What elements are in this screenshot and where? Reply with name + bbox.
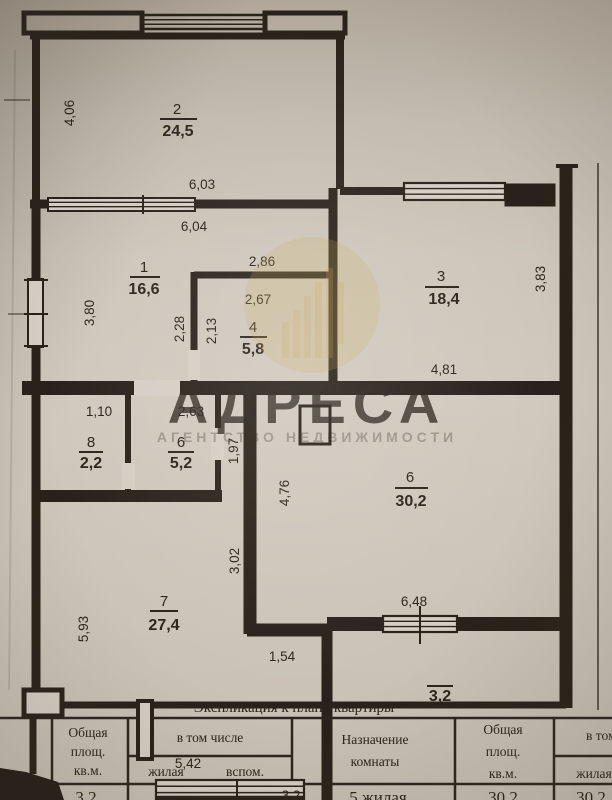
room-2-area: 24,5 [162,123,193,140]
floorplan-drawing: 2 24,5 1 16,6 3 18,4 4 5,8 8 2,2 6 5,2 6… [0,0,612,800]
room-6b-area: 30,2 [395,493,426,510]
room-3-area: 18,4 [428,291,459,308]
room-7-area: 27,4 [148,617,179,634]
explication-table: Экспликация к плану квартиры Общая площ.… [0,700,612,800]
room-1-number: 1 [140,259,148,276]
dim-1-54: 1,54 [269,649,296,664]
room-2-number: 2 [173,101,181,118]
row-total-right: 30,2 [488,788,518,800]
hdr-purpose-2: комнаты [351,754,400,769]
room-6b-number: 6 [406,469,414,486]
room-8-number: 8 [87,434,95,451]
watermark: АДРЕСА АГЕНТСТВО НЕДВИЖИМОСТИ [157,237,457,445]
watermark-brand-text: АДРЕСА [168,372,447,435]
photographed-floorplan-page: 2 24,5 1 16,6 3 18,4 4 5,8 8 2,2 6 5,2 6… [0,0,612,800]
dim-4-06: 4,06 [62,100,77,126]
hdr-total2-1: Общая [483,722,522,737]
row-purpose: 5 жилая [349,788,407,800]
hdr-total-1: Общая [68,725,107,740]
hdr-total2-3: кв.м. [489,766,517,781]
hdr-purpose-1: Назначение [342,732,409,747]
dim-2-13: 2,13 [204,318,219,344]
hdr-group-incl-2: в том числе [586,728,612,743]
dim-6-48: 6,48 [401,594,427,609]
watermark-logo-icon [244,237,380,373]
watermark-subtitle-text: АГЕНТСТВО НЕДВИЖИМОСТИ [157,429,457,445]
dim-3-83: 3,83 [533,266,548,292]
table-title: Экспликация к плану квартиры [194,700,394,716]
room-8-area: 2,2 [80,455,102,472]
dim-5-42: 5,42 [175,756,201,771]
hdr-aux: вспом. [226,764,264,779]
room-7-number: 7 [160,593,168,610]
hdr-total-2: площ. [71,744,105,759]
dim-1-10: 1,10 [86,404,112,419]
room-3-number: 3 [437,268,445,285]
dim-5-93: 5,93 [76,616,91,642]
row-total: 3,2 [75,788,96,800]
dim-3-80: 3,80 [82,300,97,326]
dim-6-04: 6,04 [181,219,208,234]
balcony-area: 3,2 [429,688,451,705]
loggia-low-area: 3,2 [282,788,301,800]
hdr-group-incl: в том числе [177,730,244,745]
hdr-total-3: кв.м. [74,763,102,778]
row-living-right: 30,2 [576,788,606,800]
room-6s-area: 5,2 [170,455,192,472]
hdr-living-2: жилая [575,766,612,781]
dim-2-28: 2,28 [172,316,187,342]
hdr-total2-2: площ. [486,744,520,759]
dim-3-02: 3,02 [227,548,242,574]
room-1-area: 16,6 [128,281,159,298]
dim-4-76: 4,76 [277,480,292,506]
dim-6-03: 6,03 [189,177,215,192]
